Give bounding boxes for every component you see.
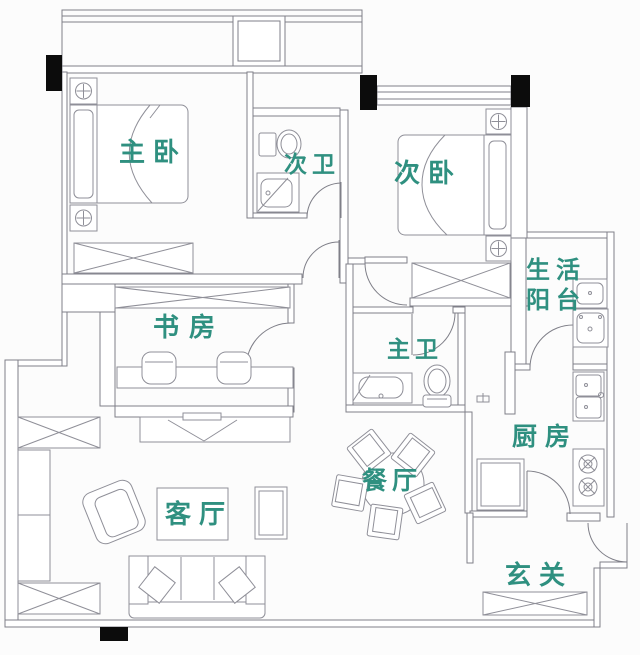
living-cabinet <box>18 583 100 614</box>
master-toilet <box>423 365 451 407</box>
wall-left-living <box>5 360 18 627</box>
door-second-bathroom <box>307 182 341 218</box>
tv-stand <box>140 413 290 442</box>
door-kitchen <box>527 471 570 514</box>
nightstand <box>70 205 97 231</box>
wall-balcony-top <box>527 232 614 238</box>
wall-masterbath-top-a <box>353 307 413 313</box>
room-label-entryway: 玄关 <box>505 560 573 590</box>
washing-machine <box>573 309 608 347</box>
floor-plan-canvas: 主卧 次卫 次卧 生活 阳台 书房 主卫 厨房 餐厅 客厅 玄关 <box>0 0 640 655</box>
room-label-second-bedroom: 次卧 <box>394 158 462 188</box>
nightstand <box>486 109 511 134</box>
room-label-balcony-line2: 阳台 <box>526 286 586 314</box>
wall-kitchen-south-a <box>470 511 527 517</box>
room-label-master-bathroom: 主卫 <box>387 336 443 362</box>
wall-kitchen-west <box>465 412 472 513</box>
wall-block-study-left <box>62 284 115 312</box>
room-label-second-bathroom: 次卫 <box>284 151 340 177</box>
tv <box>183 413 221 420</box>
wall-bath2-top <box>253 108 340 116</box>
door-entry <box>588 523 627 562</box>
flue-box <box>233 16 285 66</box>
desk-chair <box>217 352 251 384</box>
bed-pillow <box>74 110 93 198</box>
gas-stove <box>573 449 604 506</box>
wall-balcony-left <box>511 238 526 370</box>
wall-entry-right <box>594 568 600 627</box>
wall-master-bottom <box>62 274 302 284</box>
column-top-right <box>511 75 530 107</box>
room-label-balcony-line1: 生活 <box>526 257 586 284</box>
room-label-study: 书房 <box>153 312 225 342</box>
study-cabinet <box>115 287 290 308</box>
wall-kitchen-south-b <box>567 513 600 521</box>
window-second-bedroom <box>377 86 511 105</box>
shoe-cabinet <box>483 592 587 615</box>
sofa <box>129 556 265 618</box>
door-study <box>246 323 291 368</box>
wall-right-exterior <box>607 232 614 517</box>
floor-plan: 主卧 次卫 次卧 生活 阳台 书房 主卫 厨房 餐厅 客厅 玄关 <box>0 0 640 655</box>
door-balcony <box>530 325 573 368</box>
master-basin <box>353 373 412 403</box>
bay-window <box>62 10 362 73</box>
door-master-bedroom <box>303 240 339 278</box>
room-label-master-bedroom: 主卧 <box>119 137 187 167</box>
column-top-mid <box>360 75 377 110</box>
refrigerator <box>477 459 524 510</box>
wall-bed2-door-side <box>348 258 365 264</box>
dining-chair <box>367 504 403 540</box>
wall-second-bedroom-right <box>511 107 527 238</box>
wall-masterbath-right <box>458 313 465 412</box>
armchair <box>80 477 148 547</box>
nightstand <box>70 78 97 104</box>
floor-drain <box>477 393 489 402</box>
wall-masterbath-left <box>346 264 353 412</box>
wall-bottom <box>5 620 600 627</box>
wall-balcony-south-b <box>573 364 607 370</box>
kitchen-sink <box>573 372 604 421</box>
wash-basin <box>257 173 299 212</box>
door-second-bedroom <box>365 257 407 305</box>
room-label-kitchen: 厨房 <box>512 422 578 451</box>
wall-entry-jog <box>600 562 627 568</box>
room-label-dining-room: 餐厅 <box>362 467 422 495</box>
wall-kitchen-cabinet-column <box>505 352 515 414</box>
wall-master-bath2 <box>247 72 253 218</box>
second-wardrobe <box>412 263 510 298</box>
column-top-left <box>46 55 62 91</box>
desk-chair <box>142 352 176 384</box>
nightstand <box>486 236 511 261</box>
side-table <box>255 487 287 539</box>
wall-left-master <box>62 72 67 366</box>
wall-study-left <box>100 312 115 406</box>
bed-pillow <box>489 141 506 229</box>
wall-masterbath-top-b <box>453 307 465 313</box>
living-shelf <box>18 450 50 581</box>
wall-below-wardrobe2 <box>410 298 528 306</box>
wall-bath2-bottom <box>253 213 307 218</box>
living-cabinet <box>18 417 100 448</box>
column-bottom <box>100 627 128 641</box>
wall-entry-stub <box>467 513 473 563</box>
master-wardrobe <box>74 243 193 273</box>
room-label-living-room: 客厅 <box>165 499 233 529</box>
